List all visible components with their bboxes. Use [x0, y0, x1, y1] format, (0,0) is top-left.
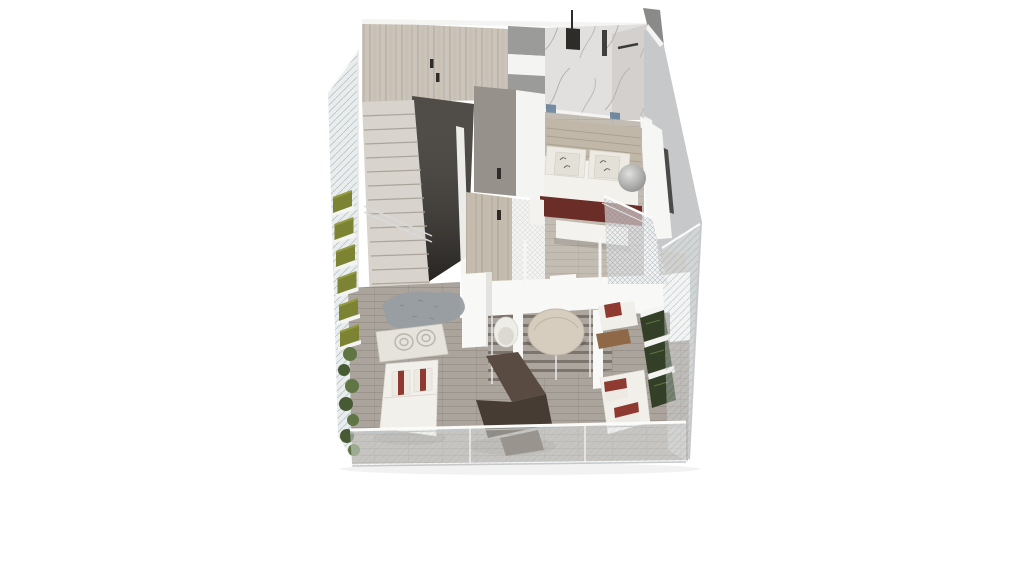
render-canvas [0, 0, 1024, 575]
front-balustrade [350, 422, 686, 466]
wardrobe-handle [436, 73, 440, 82]
vanity-cabinet-block [508, 54, 545, 76]
tub-chair-seat [498, 327, 514, 345]
bathroom-marble-wall-veins [612, 24, 648, 120]
shower-fixture [566, 28, 580, 50]
pendant-sphere [618, 164, 646, 192]
door-handle [497, 168, 501, 179]
hall-white-wall [516, 90, 545, 200]
door-wall [474, 86, 516, 196]
vanity-cabinet-block [508, 26, 545, 56]
bathroom-fixture [602, 30, 607, 56]
floorplan-3d-render [0, 0, 1024, 575]
screen-handle [497, 210, 501, 220]
bedside-table [530, 198, 544, 226]
wardrobe-handle [430, 59, 434, 68]
bush [343, 347, 357, 361]
bush [347, 414, 359, 426]
bush [338, 364, 350, 376]
bed-pillow-inner [554, 152, 580, 176]
chaise-pillow-stripe [398, 371, 404, 396]
chaise-pillow-stripe [420, 369, 426, 392]
dining-table [528, 309, 584, 355]
bush [339, 397, 353, 411]
bush [345, 379, 359, 393]
bed-pillow-inner [594, 155, 620, 179]
